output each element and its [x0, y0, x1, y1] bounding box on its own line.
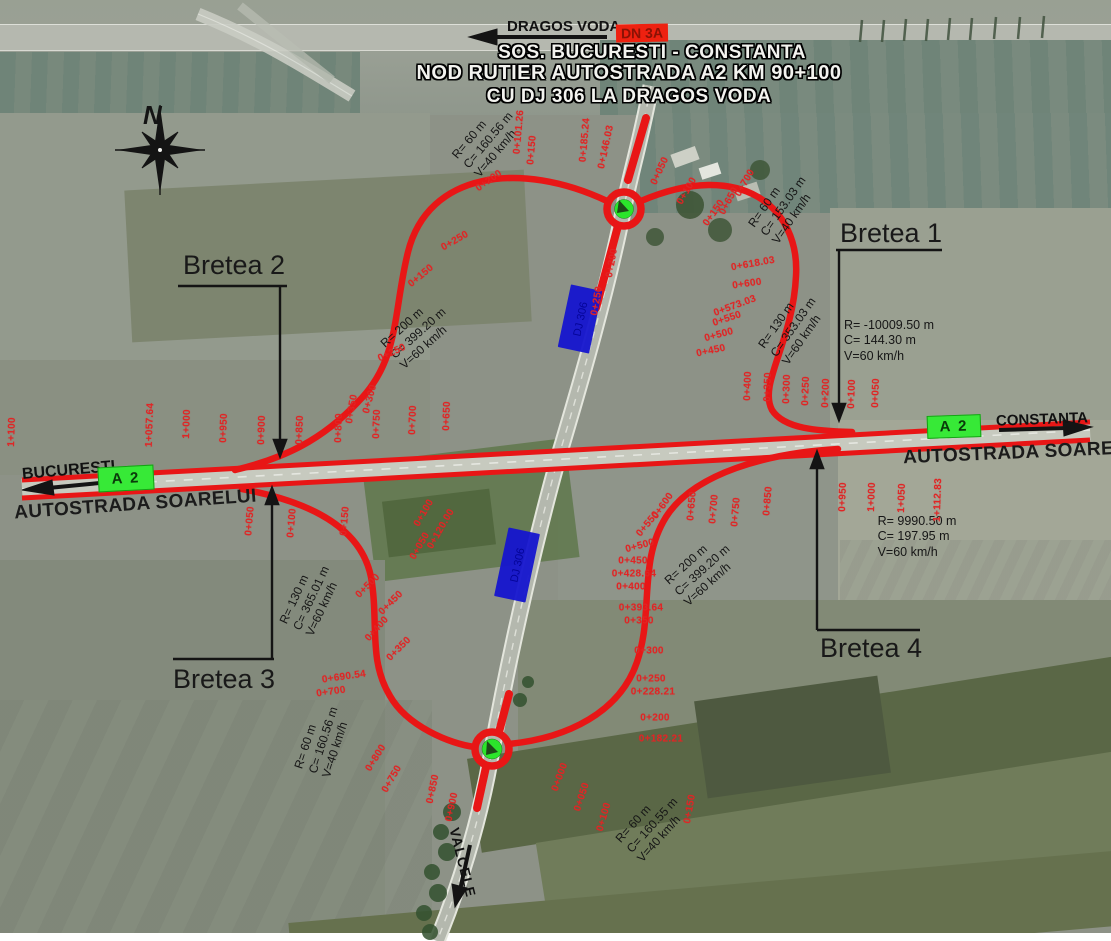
arrowhead [833, 404, 845, 420]
tree-row [860, 16, 1044, 42]
ramp-bretea-4 [509, 449, 838, 744]
compass-rose-icon [115, 105, 205, 195]
overpass-roads [198, 6, 352, 96]
leader-bretea-1 [836, 250, 942, 408]
arrowhead [266, 488, 278, 504]
leader-bretea-4 [817, 464, 920, 630]
ramp-bretea-1 [641, 185, 852, 432]
ramp-bretea-3 [242, 489, 475, 747]
arrow-constanta [999, 428, 1066, 430]
road-geometry: DJ 306 DJ 306 [0, 0, 1111, 941]
leader-bretea-3 [173, 500, 274, 659]
leader-bretea-2 [178, 286, 287, 444]
ramp-bretea-2 [235, 178, 607, 470]
interchange-map: DJ 306 DJ 306 [0, 0, 1111, 941]
